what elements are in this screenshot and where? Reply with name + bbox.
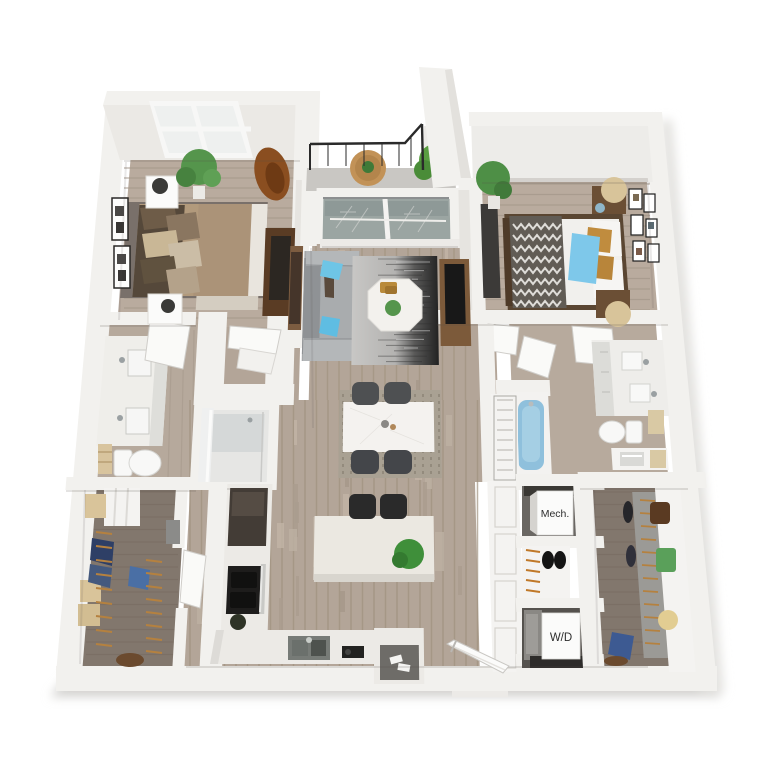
svg-text:W/D: W/D [550, 632, 572, 644]
svg-text:Mech.: Mech. [541, 508, 570, 520]
